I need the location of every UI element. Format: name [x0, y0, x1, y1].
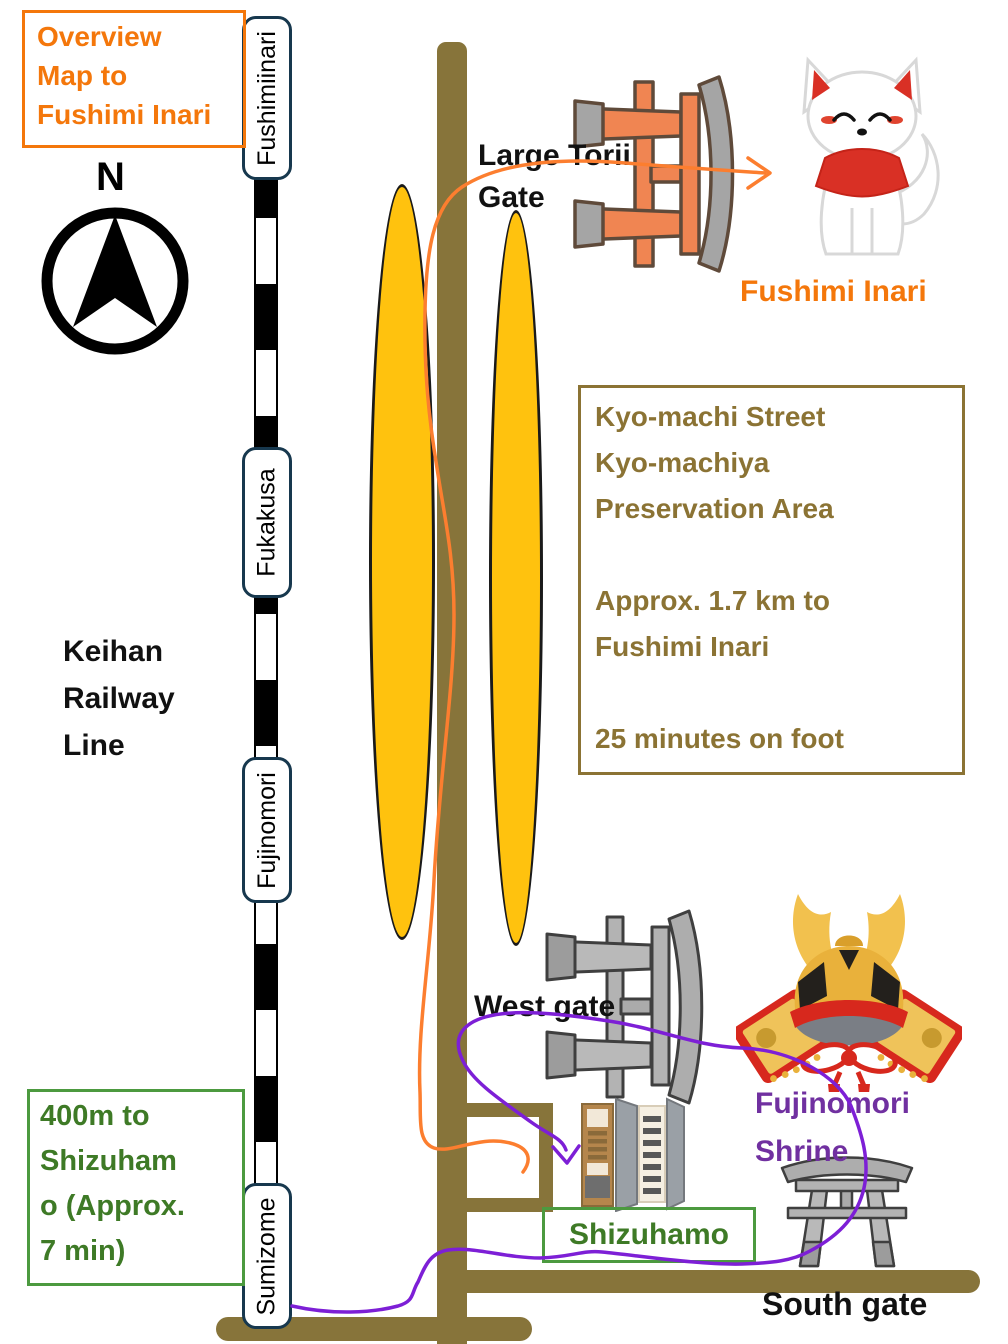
railway-line: [254, 18, 278, 1324]
station-sumizome: Sumizome: [242, 1183, 292, 1329]
station-label: Sumizome: [253, 1197, 282, 1315]
large-torii-gate-label: Large Torii Gate: [478, 135, 631, 219]
compass-icon: [38, 205, 194, 357]
distance-to-shizuhamo-box: 400m to Shizuham o (Approx. 7 min): [27, 1089, 245, 1286]
station-label: Fujinomori: [253, 772, 282, 889]
fushimi-inari-label: Fushimi Inari: [740, 275, 927, 309]
station-fukakusa: Fukakusa: [242, 447, 292, 598]
street-highlight-oval-right: [489, 210, 543, 946]
overview-map: Fushimiinari Fukakusa Fujinomori Sumizom…: [0, 0, 1008, 1344]
preservation-area-info-box: Kyo-machi Street Kyo-machiya Preservatio…: [578, 385, 965, 775]
station-fushimiinari: Fushimiinari: [242, 16, 292, 180]
fujinomori-shrine-label: Fujinomori Shrine: [755, 1080, 910, 1176]
fox-icon: [772, 46, 952, 274]
station-fujinomori: Fujinomori: [242, 757, 292, 903]
shizuhamo-label-box: Shizuhamo: [542, 1207, 756, 1263]
kabuto-helmet-icon: [736, 886, 962, 1092]
west-gate-label: West gate: [474, 990, 615, 1024]
machiya-building-icon: [580, 1096, 686, 1212]
station-label: Fukakusa: [253, 468, 282, 576]
street-highlight-oval-left: [369, 184, 435, 940]
south-gate-label: South gate: [762, 1286, 927, 1323]
route-orange-arrowhead: [748, 158, 770, 188]
station-label: Fushimiinari: [253, 31, 282, 166]
route-purple-arrowhead: [553, 1146, 579, 1163]
road-block-loop: [437, 1103, 553, 1212]
compass-north-label: N: [96, 155, 125, 200]
railway-name-label: Keihan Railway Line: [63, 628, 175, 769]
map-title-box: Overview Map to Fushimi Inari: [22, 10, 246, 148]
shizuhamo-label: Shizuhamo: [569, 1218, 729, 1252]
